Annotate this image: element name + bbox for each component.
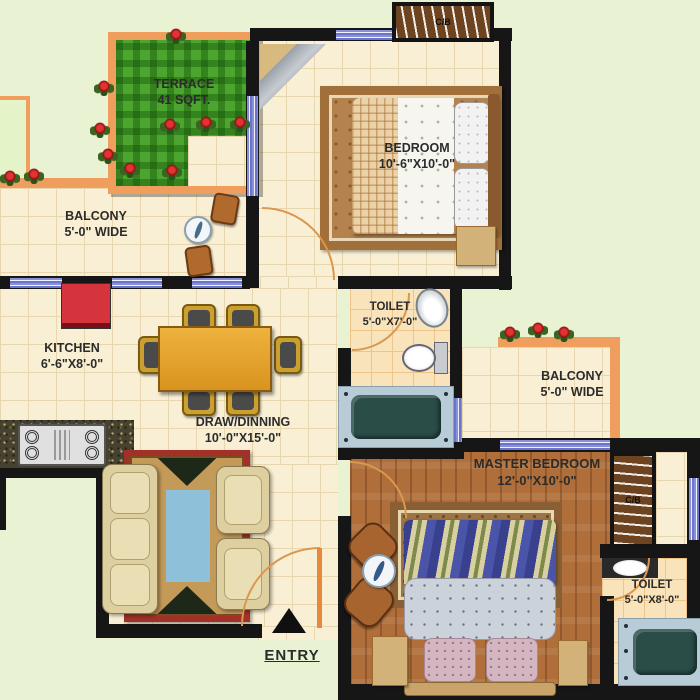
- window-balcony-left-3: [192, 278, 242, 288]
- toilet-mid-dims: 5'-0"X7'-0": [352, 315, 428, 329]
- entry-text: ENTRY: [244, 646, 340, 666]
- master-bedroom-label: MASTER BEDROOM 12'-0"X10'-0": [472, 456, 602, 490]
- rose-icon: [196, 114, 216, 132]
- bathtub-right: [633, 629, 697, 675]
- master-bedroom-dims: 12'-0"X10'-0": [472, 473, 602, 490]
- rose-icon: [0, 168, 20, 186]
- cupboard-top-label: C/B: [435, 17, 451, 27]
- bed-headboard: [488, 94, 500, 238]
- rose-icon: [160, 116, 180, 134]
- entry-label: ENTRY: [244, 646, 340, 666]
- draw-dining-dims: 10'-0"X15'-0": [150, 430, 336, 446]
- master-bed: [404, 520, 556, 696]
- table-ornament: [372, 560, 387, 582]
- rose-icon: [94, 78, 114, 96]
- master-pillow-2: [486, 638, 538, 682]
- rose-icon: [528, 320, 548, 338]
- balcony-left-dims: 5'-0" WIDE: [28, 224, 164, 240]
- terrace-label: TERRACE 41 SQFT.: [128, 76, 240, 109]
- rose-icon: [24, 166, 44, 184]
- burner-2: [25, 446, 39, 460]
- rose-icon: [500, 324, 520, 342]
- rose-icon: [162, 162, 182, 180]
- burner-3: [85, 430, 99, 444]
- master-side-table-2: [558, 640, 588, 686]
- rose-icon: [98, 146, 118, 164]
- carpet-motif-bottom: [152, 586, 222, 614]
- kitchen-name: KITCHEN: [16, 340, 128, 356]
- toilet-right-name: TOILET: [606, 578, 698, 593]
- burner-4: [85, 446, 99, 460]
- wc-tank: [434, 342, 448, 374]
- master-blanket: [404, 520, 556, 584]
- carpet-motif-top: [152, 458, 222, 486]
- terrace-notch-floor: [188, 136, 252, 186]
- balcony-left-label: BALCONY 5'-0" WIDE: [28, 208, 164, 241]
- burner-1: [25, 430, 39, 444]
- cupboard-master-label: C/B: [625, 495, 641, 505]
- toilet-right-label: TOILET 5'-0"X8'-0": [606, 578, 698, 607]
- draw-dining-label: DRAW/DINNING 10'-0"X15'-0": [150, 414, 336, 447]
- sink-toilet-right: [613, 560, 647, 576]
- window-right-outer: [689, 478, 699, 540]
- window-balcony-left-1: [10, 278, 62, 288]
- terrace-dims: 41 SQFT.: [128, 92, 240, 108]
- bed-pillow-2: [454, 168, 490, 230]
- balcony-right-dims: 5'-0" WIDE: [516, 384, 628, 400]
- dining-chair-4: [274, 336, 302, 374]
- carpet-center: [166, 490, 210, 582]
- toilet-right-dims: 5'-0"X8'-0": [606, 593, 698, 607]
- terrace-name: TERRACE: [128, 76, 240, 92]
- master-bedroom-name: MASTER BEDROOM: [472, 456, 602, 473]
- window-balcony-left-2: [112, 278, 162, 288]
- toilet-mid-name: TOILET: [352, 300, 428, 315]
- rose-icon: [166, 26, 186, 44]
- master-pillow-1: [424, 638, 476, 682]
- rose-icon: [554, 324, 574, 342]
- balcony-table-ornament: [193, 221, 204, 240]
- wall-toilet-right-left: [600, 596, 614, 688]
- balcony-right-label: BALCONY 5'-0" WIDE: [516, 368, 628, 401]
- kitchen-label: KITCHEN 6'-6"X8'-0": [16, 340, 128, 373]
- rose-icon: [90, 120, 110, 138]
- master-quilt: [404, 578, 556, 640]
- wall-drawing-bottom: [96, 624, 262, 638]
- kitchen-dims: 6'-6"X8'-0": [16, 356, 128, 372]
- bathtub-mid: [351, 395, 441, 439]
- cupboard-master: C/B: [610, 452, 656, 548]
- balcony-right-name: BALCONY: [516, 368, 628, 384]
- entry-arrow-icon: [272, 608, 306, 633]
- rose-icon: [230, 114, 250, 132]
- entry-door-leaf: [317, 548, 322, 628]
- floor-plan: C/B C/B: [0, 0, 700, 700]
- rose-icon: [120, 160, 140, 178]
- balcony-chair-2: [184, 244, 214, 277]
- bathtub-right-surround: [618, 618, 700, 686]
- window-master-top: [500, 440, 610, 450]
- bedroom-name: BEDROOM: [352, 140, 482, 156]
- wc-bowl: [402, 344, 436, 372]
- master-side-table-1: [372, 636, 408, 686]
- sofa-long: [102, 464, 158, 614]
- window-bedroom-left: [247, 96, 258, 196]
- cupboard-top: C/B: [392, 2, 494, 42]
- sofa-single-1: [216, 466, 270, 534]
- stove-grill: [54, 430, 70, 460]
- balcony-left-name: BALCONY: [28, 208, 164, 224]
- toilet-mid-label: TOILET 5'-0"X7'-0": [352, 300, 428, 329]
- passage-floor: [656, 452, 690, 546]
- refrigerator: [62, 284, 110, 328]
- balcony-table: [184, 216, 212, 244]
- bedroom-label: BEDROOM 10'-6"X10'-0": [352, 140, 482, 173]
- draw-dining-name: DRAW/DINNING: [150, 414, 336, 430]
- bedroom-side-table: [456, 226, 496, 266]
- master-headboard: [404, 682, 556, 696]
- bathtub-mid-surround: [338, 386, 454, 448]
- stove: [18, 424, 106, 466]
- wall-bedroom-bottom: [338, 276, 512, 289]
- balcony-chair-1: [210, 192, 241, 226]
- bedroom-dims: 10'-6"X10'-0": [352, 156, 482, 172]
- sofa-single-2: [216, 538, 270, 610]
- vanity-right: [602, 558, 658, 578]
- master-round-table: [362, 554, 396, 588]
- wall-toilet-mid-right: [450, 276, 462, 398]
- dining-table: [158, 326, 272, 392]
